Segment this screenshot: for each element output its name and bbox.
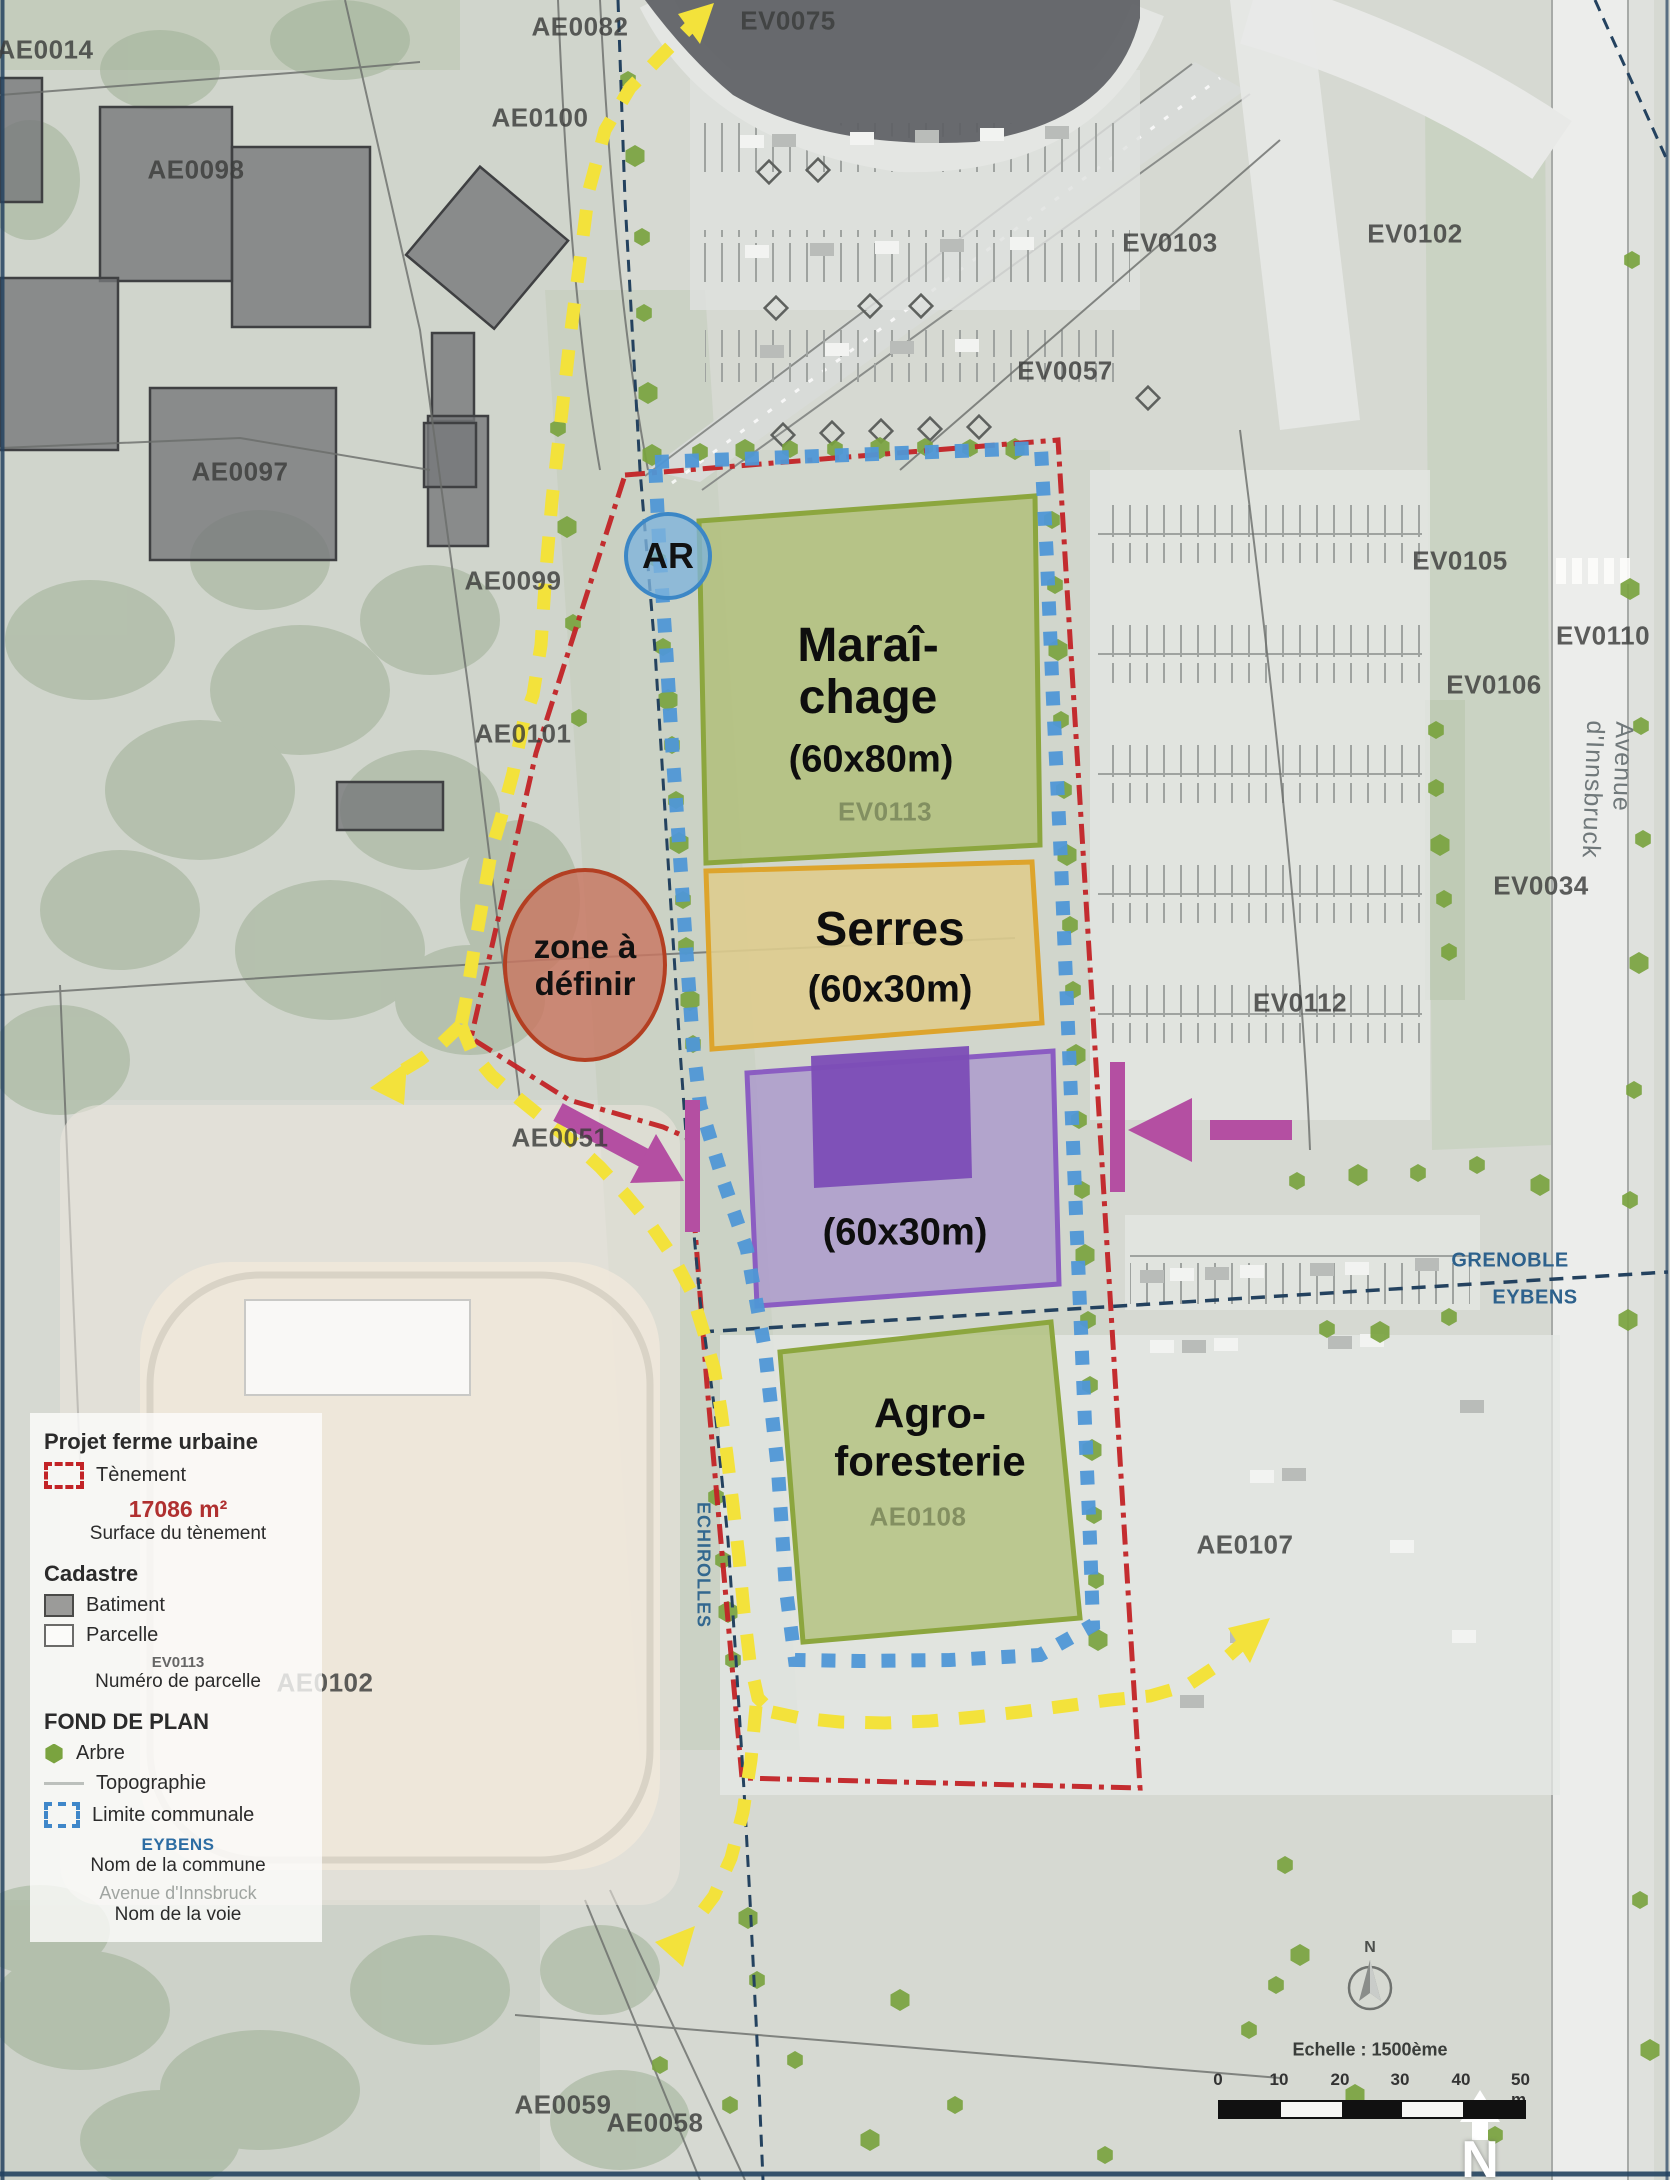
- car: [980, 128, 1004, 141]
- legend-limite-label: Limite communale: [92, 1804, 254, 1827]
- zone-serres-label: Serres: [815, 904, 964, 956]
- car: [1250, 1470, 1274, 1483]
- zone-agro-label: Agro-foresterie: [834, 1390, 1025, 1487]
- tree-icon: [1268, 1976, 1284, 1994]
- site-plan-map: AE0014AE0082AE0100AE0098EV0075EV0103EV01…: [0, 0, 1670, 2180]
- tree-icon: [739, 1907, 758, 1929]
- parcel-label-ae0100: AE0100: [492, 103, 589, 134]
- car: [890, 341, 914, 354]
- car: [1150, 1340, 1174, 1353]
- zone-serres-size: (60x30m): [808, 969, 973, 1012]
- scale-tick: 20: [1331, 2070, 1350, 2090]
- legend-tenement-label: Tènement: [96, 1464, 186, 1487]
- car: [1452, 1630, 1476, 1643]
- tree-icon: [787, 2051, 803, 2069]
- legend-parcel-example: EV0113: [44, 1654, 312, 1671]
- tree-icon: [1441, 1308, 1457, 1326]
- access-gate-east: [1110, 1062, 1125, 1192]
- street-label-avenue-innsbruck: Avenue d'Innsbruck: [1576, 720, 1639, 860]
- parcel-label-ev0103: EV0103: [1122, 228, 1218, 259]
- car: [1460, 1400, 1484, 1413]
- legend-batiment-label: Batiment: [86, 1594, 165, 1617]
- car: [1310, 1263, 1334, 1276]
- north-arrow-label: N: [1461, 2130, 1499, 2180]
- car: [1390, 1540, 1414, 1553]
- tree-icon: [1469, 1156, 1485, 1174]
- scale-ticks: 0 10 20 30 40 50 m: [1198, 2070, 1568, 2090]
- tree-icon: [1291, 1944, 1310, 1966]
- parcel-label-ev0113: EV0113: [838, 797, 932, 828]
- parcel-label-ae0099: AE0099: [465, 566, 562, 597]
- tenement-symbol: [44, 1462, 84, 1489]
- tree-icon: [1349, 1164, 1368, 1186]
- car: [1205, 1267, 1229, 1280]
- car: [850, 132, 874, 145]
- parcel-label-ae0082: AE0082: [532, 12, 629, 43]
- parcel-label-ev0057: EV0057: [1017, 356, 1113, 387]
- scale-title: Echelle : 1500ème: [1292, 2040, 1447, 2061]
- parcel-label-ev0110: EV0110: [1556, 621, 1650, 652]
- tree-icon: [947, 2096, 963, 2114]
- parcel-label-ae0098: AE0098: [148, 155, 245, 186]
- parcel-label-ae0108: AE0108: [870, 1502, 967, 1533]
- zone-a-definir-label: zone àdéfinir: [534, 929, 637, 1003]
- car: [875, 241, 899, 254]
- compass-north-label: N: [1364, 1939, 1376, 1957]
- tree-icon: [1277, 1856, 1293, 1874]
- car: [1182, 1340, 1206, 1353]
- compass-icon: [1349, 1960, 1391, 2009]
- legend-street-label: Nom de la voie: [44, 1904, 312, 1926]
- tree-icon: [1241, 2021, 1257, 2039]
- zone-batiment-size: (60x30m): [823, 1212, 988, 1255]
- parcel-label-ae0101: AE0101: [475, 719, 572, 750]
- commune-label-grenoble: GRENOBLE: [1451, 1250, 1568, 1273]
- car: [1045, 126, 1069, 139]
- car: [1180, 1695, 1204, 1708]
- legend-parcelle-label: Parcelle: [86, 1624, 158, 1647]
- legend-street-example: Avenue d'Innsbruck: [44, 1883, 312, 1904]
- car: [825, 343, 849, 356]
- parcel-label-ev0034: EV0034: [1493, 871, 1589, 902]
- parcel-label-ae0058: AE0058: [607, 2108, 704, 2139]
- scale-tick: 10: [1270, 2070, 1289, 2090]
- car: [772, 134, 796, 147]
- car: [760, 345, 784, 358]
- tree-icon: [1410, 1164, 1426, 1182]
- zone-maraichage-size: (60x80m): [789, 739, 954, 782]
- tree-icon: [626, 145, 645, 167]
- car: [1170, 1268, 1194, 1281]
- topographie-symbol: [44, 1782, 84, 1785]
- parcelle-symbol: [44, 1624, 74, 1647]
- parcel-label-ev0112: EV0112: [1253, 988, 1347, 1019]
- parcel-label-ae0107: AE0107: [1197, 1530, 1294, 1561]
- parcel-label-ev0102: EV0102: [1367, 219, 1463, 250]
- access-gate-west: [685, 1100, 700, 1232]
- legend-arbre-label: Arbre: [76, 1742, 125, 1765]
- legend-commune-label: Nom de la commune: [44, 1855, 312, 1877]
- scale-tick: 30: [1391, 2070, 1410, 2090]
- zone-batiment-agricole-inner: [811, 1046, 972, 1188]
- car: [1328, 1336, 1352, 1349]
- car: [1214, 1338, 1238, 1351]
- car: [940, 239, 964, 252]
- parcel-label-ev0075: EV0075: [740, 6, 836, 37]
- legend-panel: Projet ferme urbaine Tènement 17086 m² S…: [30, 1413, 322, 1942]
- parcel-label-ae0014: AE0014: [0, 35, 93, 66]
- car: [1140, 1270, 1164, 1283]
- limite-communale-symbol: [44, 1802, 80, 1828]
- car: [1240, 1265, 1264, 1278]
- car: [740, 135, 764, 148]
- legend-title-projet: Projet ferme urbaine: [44, 1429, 312, 1455]
- batiment-symbol: [44, 1594, 74, 1617]
- tree-icon: [634, 228, 650, 246]
- tree-icon: [1289, 1172, 1305, 1190]
- legend-title-cadastre: Cadastre: [44, 1561, 312, 1587]
- tree-icon: [1531, 1174, 1550, 1196]
- car: [915, 130, 939, 143]
- parcel-label-ev0105: EV0105: [1412, 546, 1508, 577]
- tree-icon: [749, 1971, 765, 1989]
- scale-tick: 0: [1213, 2070, 1222, 2090]
- car: [1282, 1468, 1306, 1481]
- legend-area-value: 17086 m²: [44, 1496, 312, 1523]
- legend-topographie-label: Topographie: [96, 1772, 206, 1795]
- car: [1415, 1258, 1439, 1271]
- tree-icon: [861, 2129, 880, 2151]
- zone-maraichage-label: Maraî-chage: [797, 620, 938, 724]
- parcel-label-ae0051: AE0051: [512, 1123, 609, 1154]
- car: [810, 243, 834, 256]
- legend-area-label: Surface du tènement: [44, 1523, 312, 1545]
- legend-commune-example: EYBENS: [44, 1835, 312, 1855]
- parcel-label-ae0059: AE0059: [515, 2090, 612, 2121]
- legend-parcel-number-label: Numéro de parcelle: [44, 1671, 312, 1693]
- car: [1345, 1262, 1369, 1275]
- car: [1010, 237, 1034, 250]
- car: [745, 245, 769, 258]
- tree-icon: [722, 2096, 738, 2114]
- car: [955, 339, 979, 352]
- scale-bar: [1218, 2100, 1526, 2119]
- ar-label: AR: [642, 535, 694, 577]
- parcel-label-ev0106: EV0106: [1446, 670, 1542, 701]
- legend-title-fond: FOND DE PLAN: [44, 1709, 312, 1735]
- scale-tick: 40: [1452, 2070, 1471, 2090]
- commune-label-eybens: EYBENS: [1492, 1287, 1577, 1310]
- tree-icon: [1097, 2146, 1113, 2164]
- commune-label-echirolles: ECHIROLLES: [693, 1502, 714, 1628]
- parcel-label-ae0097: AE0097: [192, 457, 289, 488]
- tree-icon: [891, 1989, 910, 2011]
- tree-symbol: [44, 1744, 64, 1764]
